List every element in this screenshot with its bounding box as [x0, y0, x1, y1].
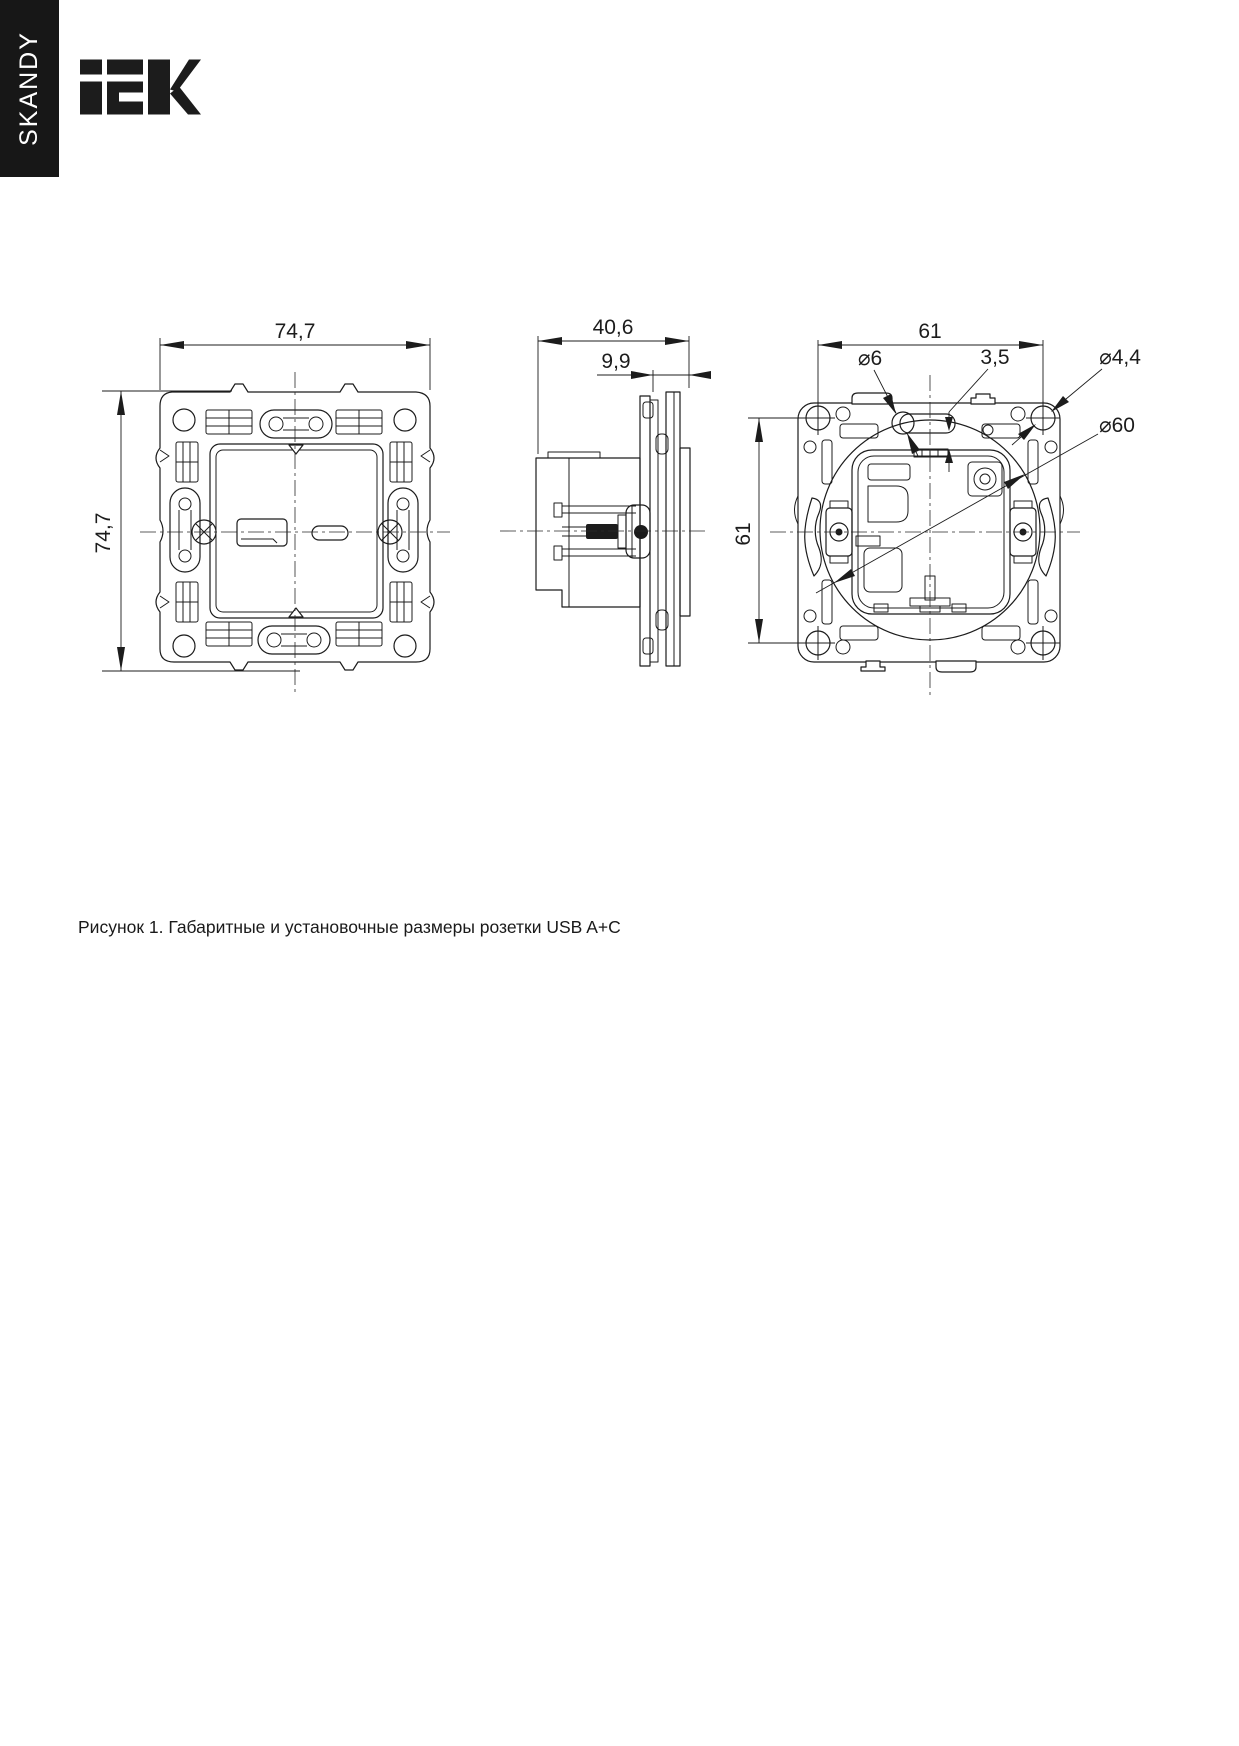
- dim-hole-spacing-v: 61: [732, 522, 755, 545]
- dim-tab-gap: 3,5: [980, 346, 1009, 369]
- claw-right: [1010, 498, 1055, 576]
- dim-tab-hole-dia: ⌀6: [858, 347, 882, 370]
- claw-screw-thread: [586, 524, 618, 539]
- dim-hole-spacing-h: 61: [918, 320, 941, 343]
- figure-caption: Рисунок 1. Габаритные и установочные раз…: [78, 917, 621, 938]
- usb-c-port: [312, 526, 348, 540]
- side-view: 40,6 9,9: [500, 316, 711, 666]
- claw-left: [805, 498, 852, 576]
- dim-protrusion: 9,9: [601, 350, 630, 373]
- dim-mech-dia: ⌀60: [1099, 414, 1135, 437]
- dim-depth: 40,6: [593, 316, 634, 339]
- dim-front-width: 74,7: [275, 320, 316, 343]
- datasheet-page: { "sidebar": { "series_label": "SKANDY" …: [0, 0, 1239, 1746]
- front-view: 74,7 74,7: [92, 320, 450, 692]
- dim-front-height: 74,7: [92, 513, 115, 554]
- dim-screw-hole-dia: ⌀4,4: [1099, 346, 1141, 369]
- back-view: 61 61 ⌀6 3,5 ⌀4,4 ⌀60: [732, 320, 1141, 695]
- technical-drawing: 74,7 74,7 40: [0, 0, 1239, 1746]
- usb-a-port: [237, 519, 287, 546]
